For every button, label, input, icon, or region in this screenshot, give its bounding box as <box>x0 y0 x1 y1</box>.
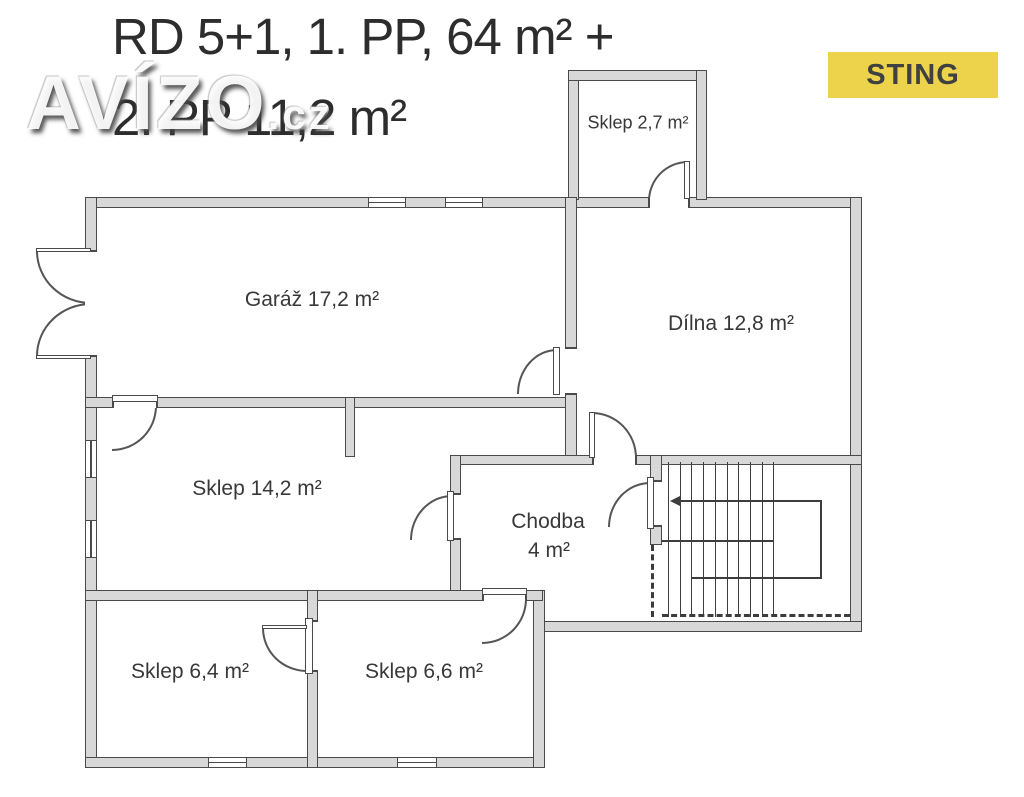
stairwell <box>662 462 850 617</box>
door-leaf <box>647 477 654 529</box>
room-label-sklep-6-6: Sklep 6,6 m² <box>365 660 483 684</box>
door-opening <box>592 455 637 465</box>
room-label-sklep-2-7: Sklep 2,7 m² <box>587 113 688 134</box>
wall <box>85 397 577 408</box>
window <box>368 197 406 208</box>
stair-walk-line <box>678 500 820 502</box>
room-label-sklep-14-2: Sklep 14,2 m² <box>192 477 322 501</box>
stair-walk-line <box>692 577 822 579</box>
room-label-chodba: Chodba <box>511 510 585 534</box>
wall <box>565 197 577 465</box>
door-leaf <box>684 161 690 199</box>
door-swing-arc <box>608 482 650 527</box>
floorplan-image: RD 5+1, 1. PP, 64 m² + 2. PP 11,2 m² STI… <box>0 0 1024 797</box>
window <box>208 757 247 768</box>
wall <box>543 621 862 632</box>
wall <box>307 590 318 768</box>
door-swing-arc <box>262 628 307 672</box>
window <box>85 440 97 478</box>
stair-flight-divider <box>662 540 773 542</box>
door-swing-arc <box>592 412 637 458</box>
garage-door-opening <box>85 250 97 357</box>
watermark-logo: AVÍZO.cz <box>26 66 333 153</box>
door-leaf <box>553 347 560 395</box>
door-swing-arc <box>517 349 557 394</box>
room-label-garaz: Garáž 17,2 m² <box>245 288 379 312</box>
agency-badge-label: STING <box>866 59 960 92</box>
agency-badge: STING <box>828 52 998 98</box>
stair-direction-arrow <box>670 496 680 506</box>
door-swing-arc <box>112 406 157 451</box>
window <box>445 197 483 208</box>
door-leaf <box>482 588 527 595</box>
room-label-dilna: Dílna 12,8 m² <box>668 312 794 336</box>
door-swing-arc <box>410 495 452 540</box>
wall <box>568 70 707 81</box>
door-leaf <box>589 412 595 458</box>
stair-walk-line <box>820 500 822 579</box>
stair-dashed-line <box>662 614 850 617</box>
window <box>85 520 97 558</box>
door-swing-arc <box>648 161 688 201</box>
door-leaf <box>447 491 454 541</box>
watermark-suffix: .cz <box>268 91 333 138</box>
watermark-brand: AVÍZO <box>26 61 268 146</box>
garage-door-leaf <box>36 355 91 359</box>
door-swing-arc <box>482 599 527 644</box>
garage-door-leaf <box>36 248 91 252</box>
room-label-sklep-6-4: Sklep 6,4 m² <box>131 660 249 684</box>
door-leaf <box>262 625 307 629</box>
room-label-chodba-area: 4 m² <box>528 539 570 563</box>
door-leaf <box>112 395 158 402</box>
garage-door-swing-arc <box>36 303 91 356</box>
wall-stub <box>345 397 355 457</box>
garage-door-swing-arc <box>36 251 91 304</box>
window <box>397 757 437 768</box>
wall <box>568 70 579 200</box>
door-opening <box>565 347 577 395</box>
wall <box>696 70 707 200</box>
wall <box>533 590 545 768</box>
wall <box>850 197 862 632</box>
stair-dashed-line <box>651 545 654 617</box>
stair-tread <box>773 462 774 617</box>
